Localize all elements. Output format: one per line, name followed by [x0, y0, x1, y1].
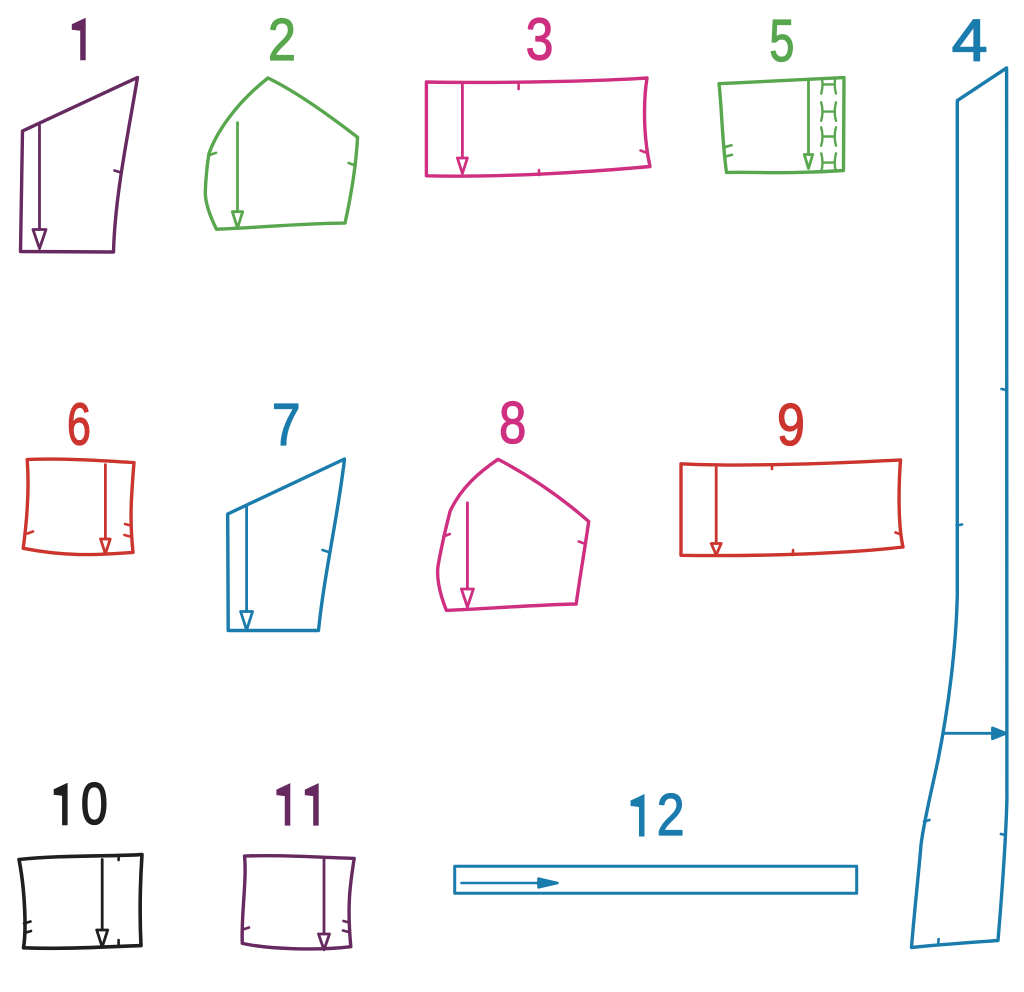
svg-text:0: 0: [81, 771, 108, 837]
svg-text:2: 2: [657, 782, 685, 848]
svg-text:3: 3: [526, 7, 554, 73]
svg-text:4: 4: [952, 8, 988, 74]
svg-text:8: 8: [499, 390, 526, 456]
svg-text:2: 2: [268, 7, 296, 73]
svg-text:9: 9: [777, 392, 805, 458]
svg-text:6: 6: [67, 392, 91, 458]
svg-text:5: 5: [769, 8, 794, 74]
svg-text:7: 7: [272, 392, 301, 458]
